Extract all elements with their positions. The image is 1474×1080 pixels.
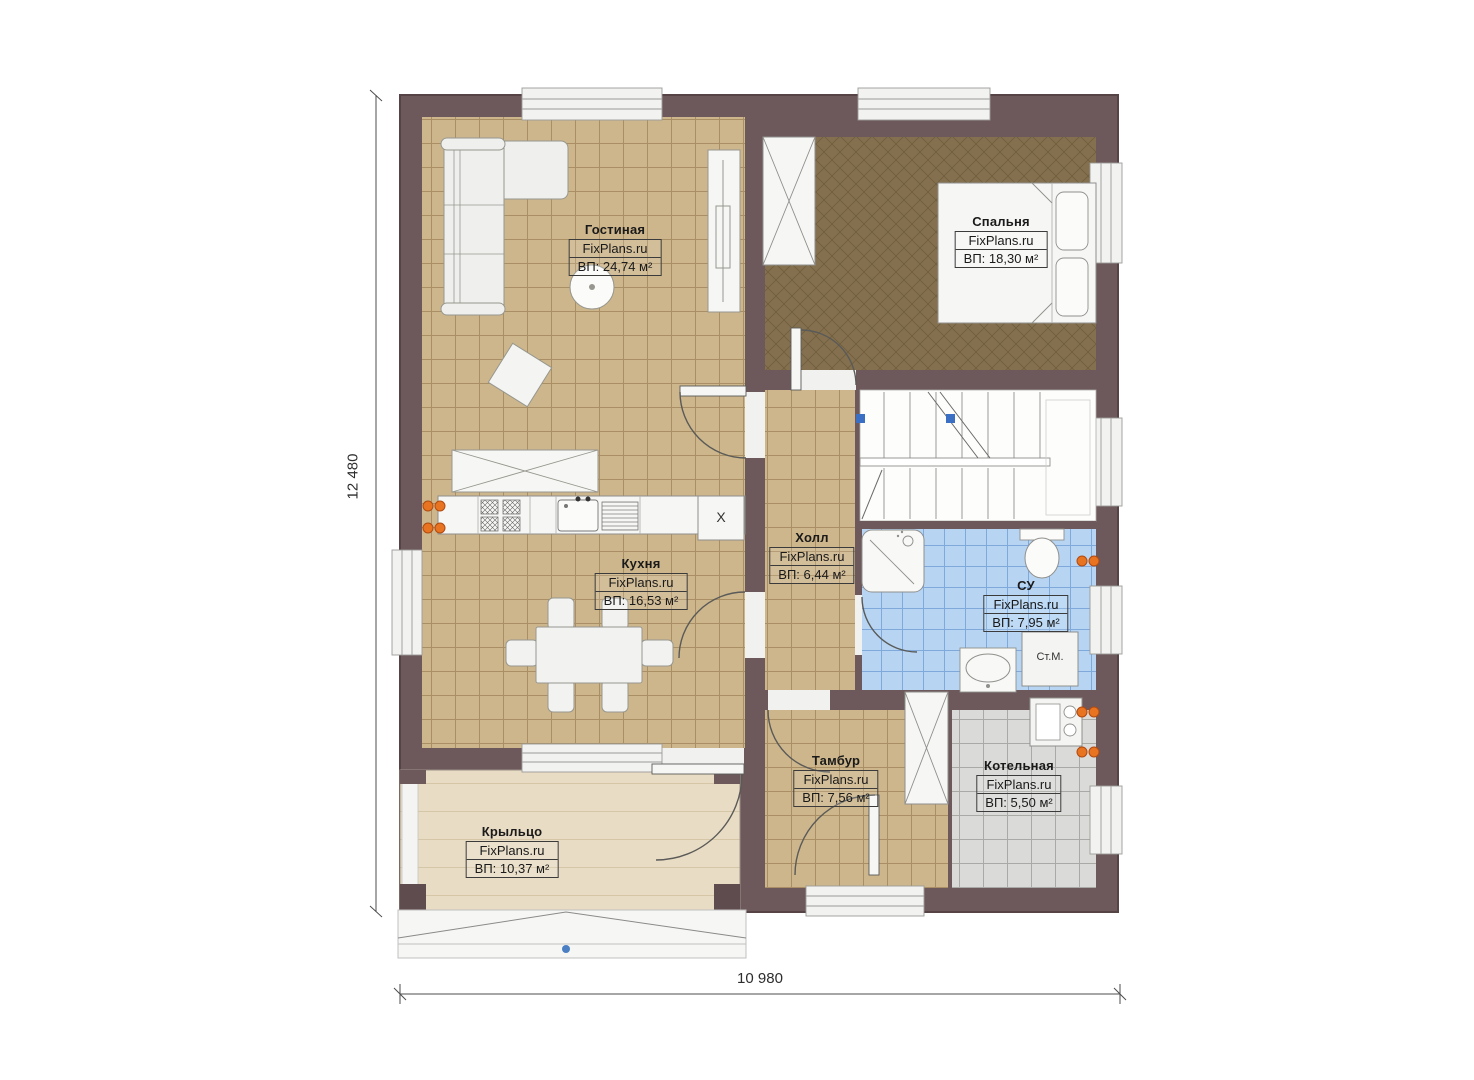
room-area: ВП: 10,37 м² [467, 860, 558, 877]
room-label-kitchen: Кухня FixPlans.ru ВП: 16,53 м² [595, 556, 688, 610]
room-area: ВП: 7,95 м² [984, 614, 1067, 631]
room-name: СУ [983, 578, 1068, 593]
sink-icon [558, 497, 638, 532]
wall-stairs-bath [858, 521, 1096, 529]
brand-watermark: FixPlans.ru [794, 771, 877, 789]
room-label-porch: Крыльцо FixPlans.ru ВП: 10,37 м² [466, 824, 559, 878]
room-name: Крыльцо [466, 824, 559, 839]
brand-watermark: FixPlans.ru [956, 232, 1047, 250]
room-name: Спальня [955, 214, 1048, 229]
room-label-tambour: Тамбур FixPlans.ru ВП: 7,56 м² [793, 753, 878, 807]
sideboard-icon [452, 450, 598, 492]
brand-watermark: FixPlans.ru [977, 776, 1060, 794]
porch-structure [400, 770, 740, 910]
closet-icon [905, 692, 948, 804]
brand-watermark: FixPlans.ru [570, 240, 661, 258]
room-label-bathroom: СУ FixPlans.ru ВП: 7,95 м² [983, 578, 1068, 632]
brand-watermark: FixPlans.ru [467, 842, 558, 860]
room-area: ВП: 18,30 м² [956, 250, 1047, 267]
window-bedroom-top [858, 88, 990, 120]
brand-watermark: FixPlans.ru [596, 574, 687, 592]
window-kitchen-left [392, 550, 422, 655]
dimension-width-label: 10 980 [737, 970, 783, 987]
window-boiler-right [1090, 786, 1122, 854]
stair-direction-marker [856, 414, 865, 423]
wardrobe-icon [763, 137, 815, 265]
floor-plan-canvas [0, 0, 1474, 1080]
brand-watermark: FixPlans.ru [984, 596, 1067, 614]
room-name: Кухня [595, 556, 688, 571]
boiler-icon [1030, 698, 1082, 746]
room-label-living: Гостиная FixPlans.ru ВП: 24,74 м² [569, 222, 662, 276]
room-label-hall: Холл FixPlans.ru ВП: 6,44 м² [769, 530, 854, 584]
shower-icon [862, 530, 924, 592]
washbasin-icon [960, 648, 1016, 692]
room-name: Котельная [976, 758, 1061, 773]
tv-stand-icon [708, 150, 740, 312]
window-living-top [522, 88, 662, 120]
window-kitchen-porch [522, 744, 662, 772]
room-label-bedroom: Спальня FixPlans.ru ВП: 18,30 м² [955, 214, 1048, 268]
brand-watermark: FixPlans.ru [770, 548, 853, 566]
room-label-boiler: Котельная FixPlans.ru ВП: 5,50 м² [976, 758, 1061, 812]
stair-direction-marker [946, 414, 955, 423]
window-bath-right [1090, 586, 1122, 654]
floor-plan-page: Гостиная FixPlans.ru ВП: 24,74 м² Спальн… [0, 0, 1474, 1080]
room-area: ВП: 16,53 м² [596, 592, 687, 609]
room-area: ВП: 7,56 м² [794, 789, 877, 806]
stairs [856, 390, 1096, 521]
washing-machine-label: Ст.М. [1036, 651, 1063, 663]
kitchen-unit-x-label: X [716, 509, 725, 525]
room-area: ВП: 6,44 м² [770, 566, 853, 583]
room-name: Холл [769, 530, 854, 545]
room-name: Гостиная [569, 222, 662, 237]
dimension-height-label: 12 480 [344, 454, 361, 500]
room-area: ВП: 24,74 м² [570, 258, 661, 275]
porch-canopy [398, 910, 746, 958]
window-tambour-bottom [806, 886, 924, 916]
room-area: ВП: 5,50 м² [977, 794, 1060, 811]
room-name: Тамбур [793, 753, 878, 768]
